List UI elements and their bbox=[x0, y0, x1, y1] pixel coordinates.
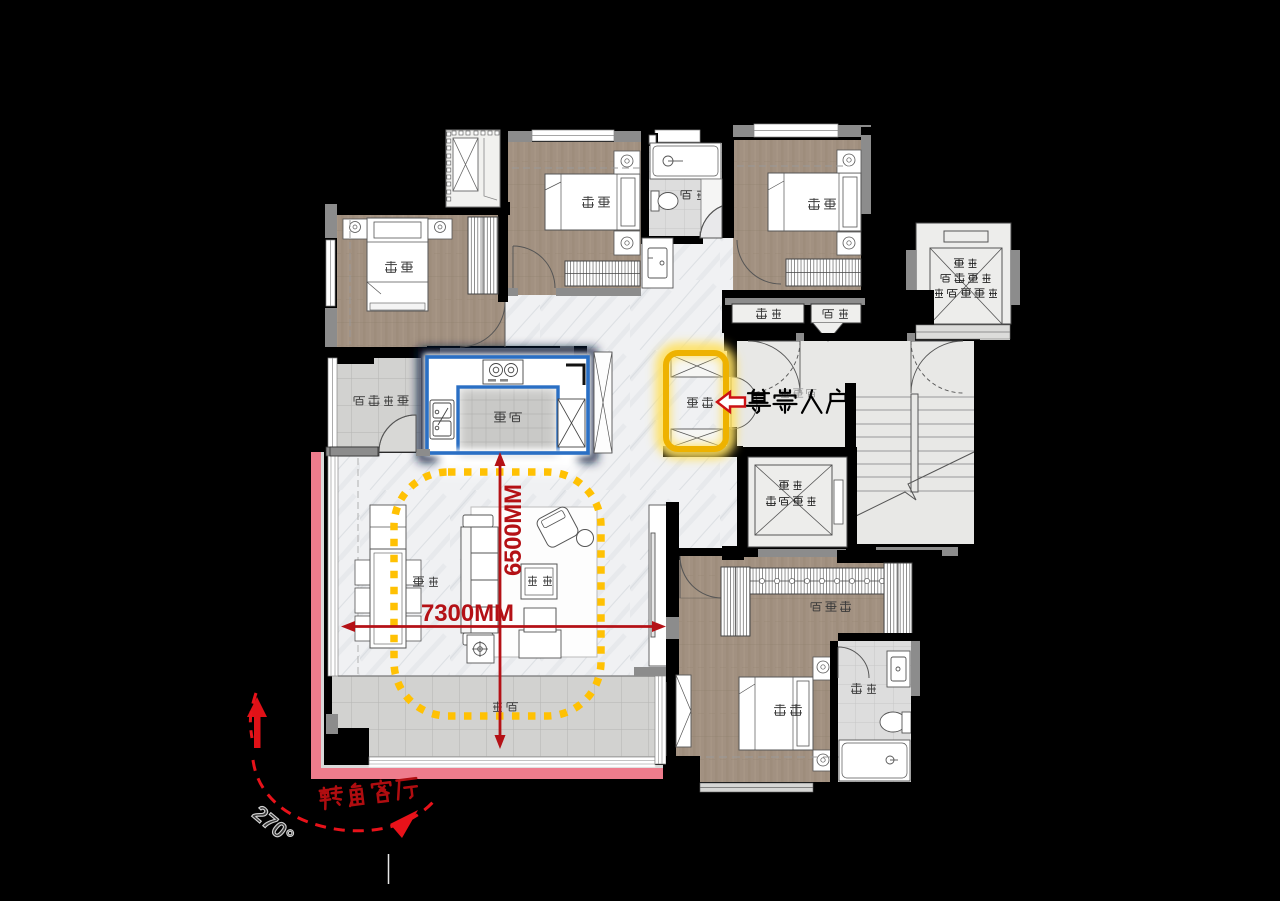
svg-text:6500MM: 6500MM bbox=[500, 484, 527, 576]
svg-text:7300MM: 7300MM bbox=[421, 600, 514, 627]
